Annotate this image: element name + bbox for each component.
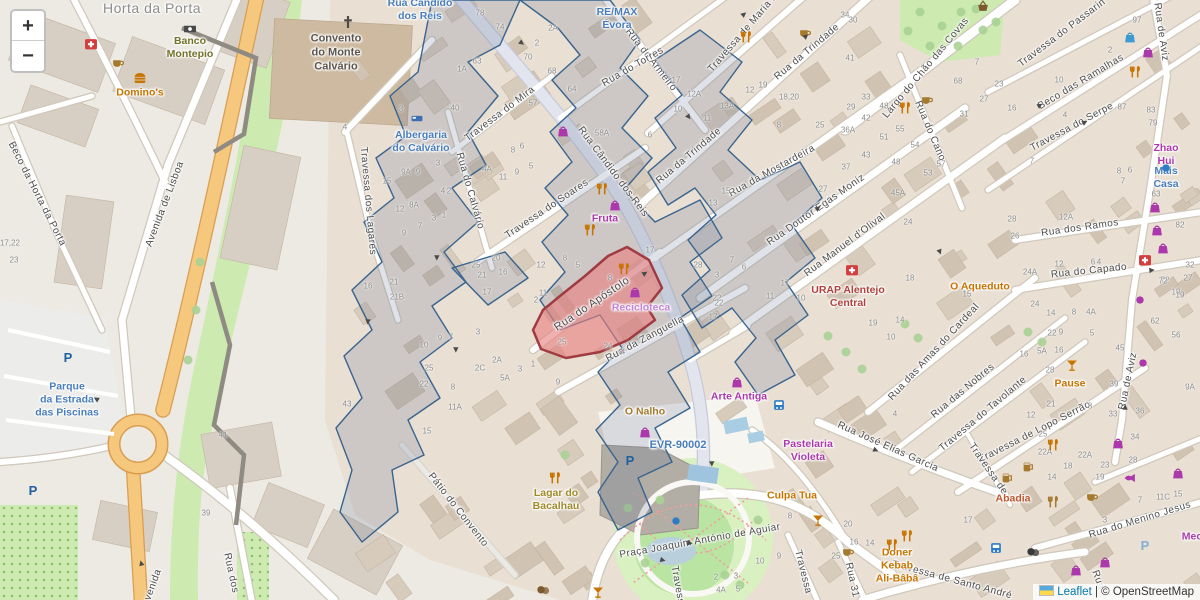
- ukraine-flag-icon: [1039, 585, 1054, 596]
- leaflet-link[interactable]: Leaflet: [1057, 586, 1092, 598]
- zoom-in-button[interactable]: +: [12, 11, 44, 41]
- osm-attribution-text: OpenStreetMap: [1113, 586, 1194, 598]
- attribution-bar: Leaflet | © OpenStreetMap: [1033, 584, 1200, 600]
- allotments: [0, 505, 78, 600]
- attribution-separator: | ©: [1092, 586, 1113, 598]
- convent-building: [269, 19, 412, 126]
- map-canvas[interactable]: Horta da PortaRua do ArmeiroRua do Torre…: [0, 0, 1200, 600]
- zoom-control: + −: [10, 9, 46, 73]
- map-base-tiles: [0, 0, 1200, 600]
- pond: [646, 537, 696, 565]
- zoom-out-button[interactable]: −: [12, 41, 44, 71]
